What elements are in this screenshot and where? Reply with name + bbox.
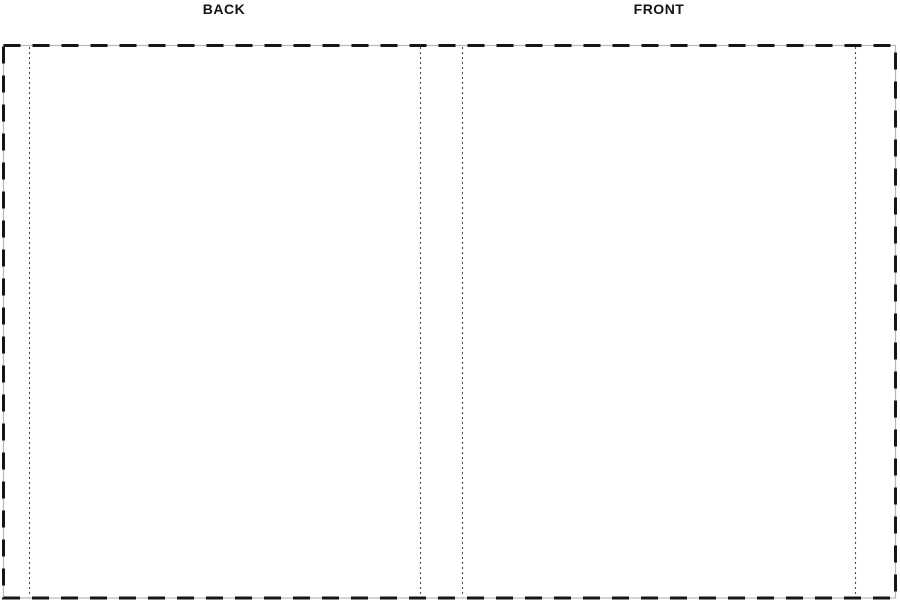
- template-guides-layer: [0, 0, 900, 605]
- cover-template-canvas: BACK FRONT: [0, 0, 900, 605]
- outer-border-underlay-line: [4, 46, 896, 599]
- outer-bleed-border: [4, 46, 896, 599]
